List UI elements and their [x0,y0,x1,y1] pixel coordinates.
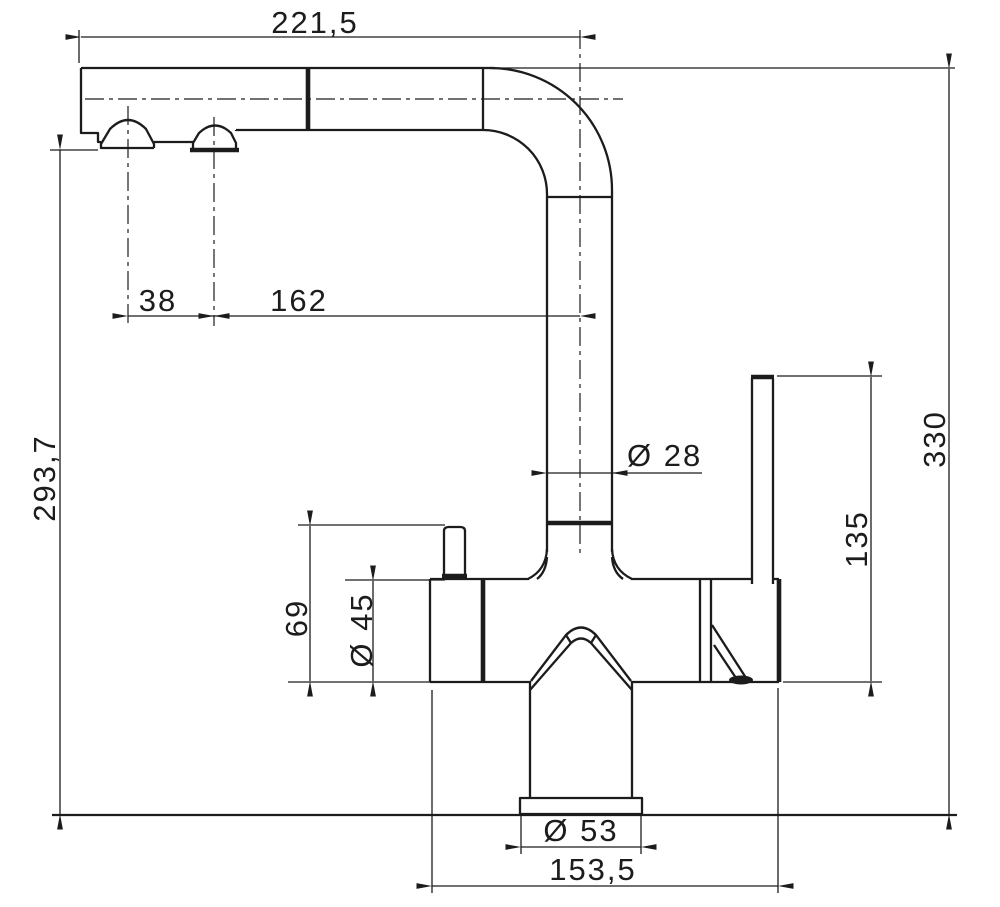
dim-label-body-span: 153,5 [549,852,637,887]
lever-pivot-end [729,676,753,685]
bend-outer-arc [490,68,612,190]
faucet-outline [52,68,957,815]
spray-head-nozzle [101,120,193,148]
dim-label-outlet-height: 293,7 [27,434,62,522]
dim-label-riser-diameter: Ø 28 [627,438,702,473]
dim-label-lever-height: 135 [839,510,874,568]
dim-label-nozzle-to-riser: 162 [270,283,328,318]
cap-lever-slot-line [712,625,748,681]
dim-label-knob-height: 69 [279,599,314,637]
extension-lines [50,30,955,893]
technical-drawing-canvas: 221,5 38 162 293,7 330 135 Ø 28 69 Ø 45 … [0,0,1000,907]
technical-drawing-page: 221,5 38 162 293,7 330 135 Ø 28 69 Ø 45 … [0,0,1000,907]
dim-label-base-diameter: Ø 53 [543,813,618,848]
under-body-chevron-inner [530,639,632,691]
bend-inner-arc [483,130,547,194]
dim-label-spout-reach: 221,5 [271,5,359,40]
dim-label-overall-height: 330 [917,410,952,468]
spout-left-edge [81,68,101,142]
base-plate [520,798,642,814]
dim-label-body-diameter: Ø 45 [344,592,379,667]
riser-flare-right [612,549,632,579]
dimension-labels: 221,5 38 162 293,7 330 135 Ø 28 69 Ø 45 … [27,5,952,887]
dimension-lines [60,37,949,886]
riser-flare-left [528,549,547,579]
filter-knob [444,527,465,577]
dim-label-nozzle-spacing: 38 [139,283,177,318]
